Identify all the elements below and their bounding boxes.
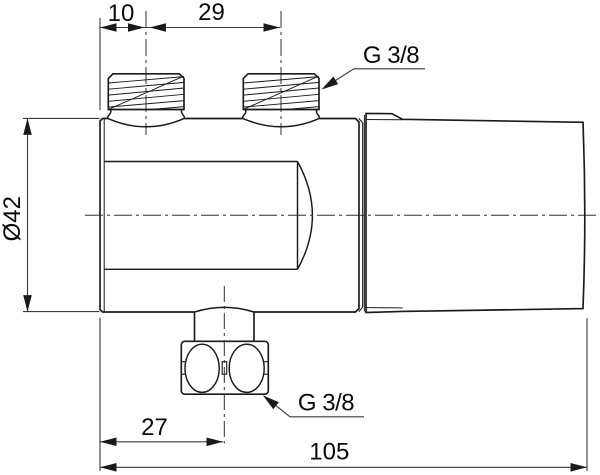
svg-text:G 3/8: G 3/8 xyxy=(363,42,419,69)
svg-text:10: 10 xyxy=(108,0,135,27)
svg-text:29: 29 xyxy=(198,0,225,26)
svg-text:27: 27 xyxy=(141,414,168,441)
svg-text:Ø42: Ø42 xyxy=(0,196,26,241)
svg-text:105: 105 xyxy=(309,439,349,466)
svg-text:G 3/8: G 3/8 xyxy=(298,390,354,417)
